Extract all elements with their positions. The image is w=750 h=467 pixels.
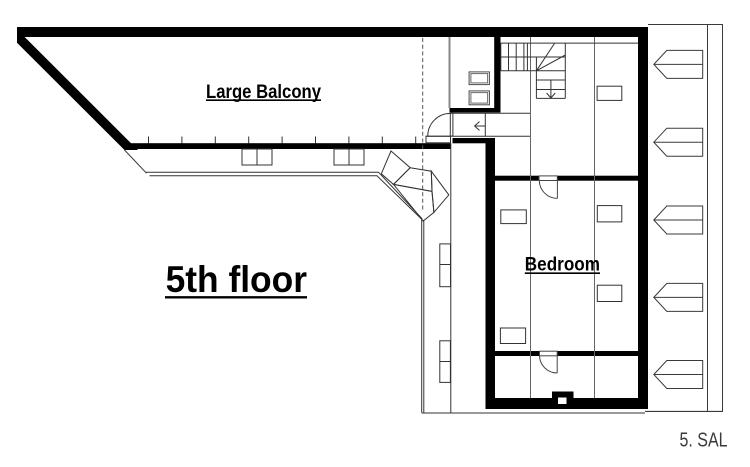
svg-text:5. SAL: 5. SAL	[680, 430, 728, 452]
svg-text:Bedroom: Bedroom	[525, 254, 600, 276]
svg-text:5th floor: 5th floor	[166, 259, 307, 300]
